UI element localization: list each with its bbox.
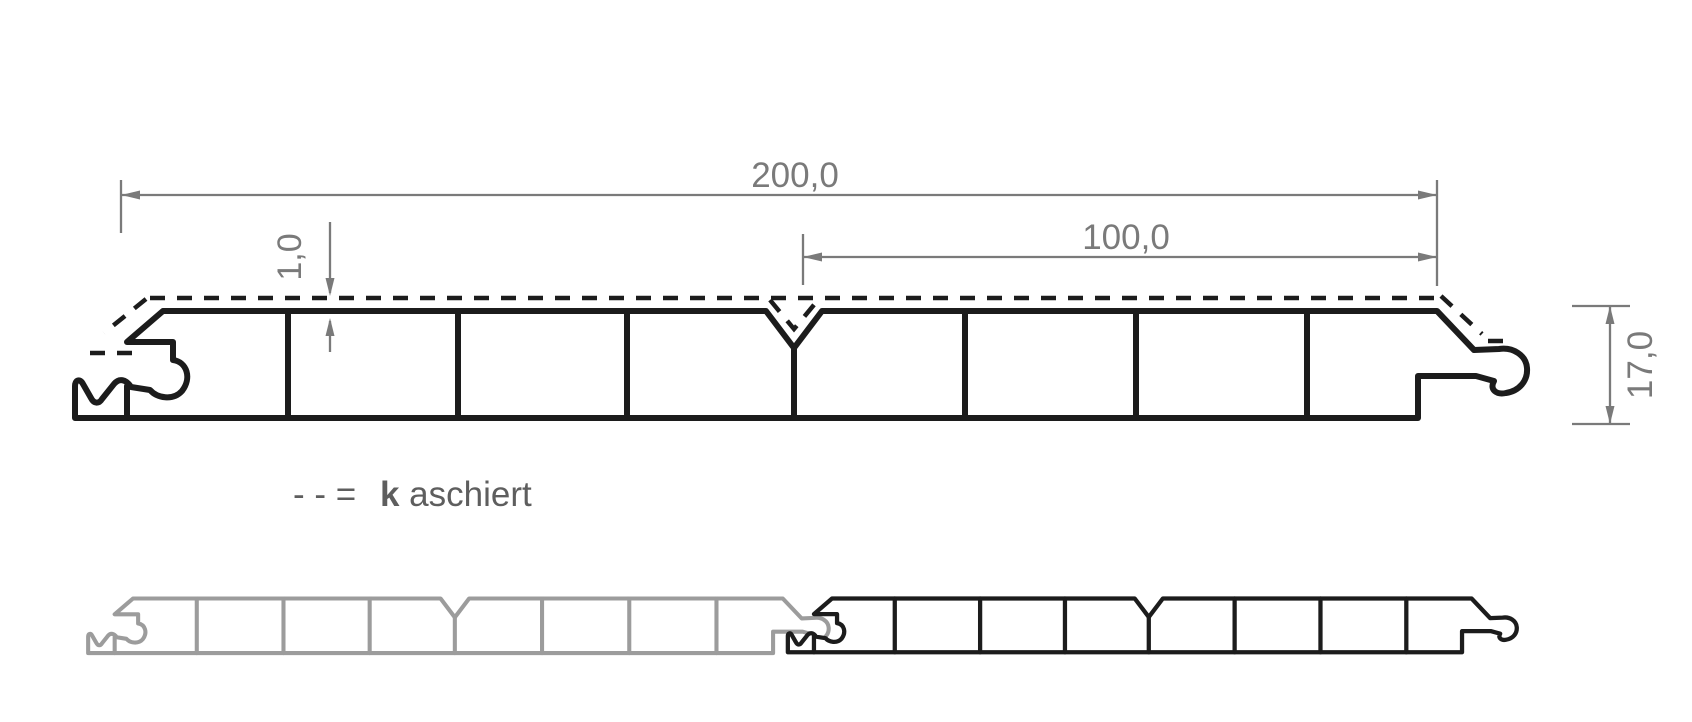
- arrow-200-left: [121, 191, 140, 200]
- legend-kaschiert: - - = k aschiert: [293, 475, 532, 514]
- legend-dash-symbol: - - =: [293, 475, 356, 514]
- dimension-label-profile-height: 17,0: [1621, 331, 1660, 399]
- main-profile-cross-section: [75, 311, 1527, 418]
- panel-gray-profile: [88, 599, 829, 654]
- interlocked-panels-assembly: [88, 599, 1517, 654]
- dimension-label-total-width: 200,0: [751, 156, 839, 195]
- technical-drawing-page: 200,0 100,0 1,0 17,0 - - = k aschiert: [0, 0, 1692, 722]
- legend-term-rest: aschiert: [409, 475, 532, 514]
- arrow-200-right: [1418, 191, 1437, 200]
- panel-profile-drawing: 200,0 100,0 1,0 17,0 - - = k aschiert: [0, 0, 1692, 722]
- arrow-100-right: [1418, 253, 1437, 262]
- arrow-17-down: [1606, 406, 1615, 424]
- dimension-label-half-width: 100,0: [1082, 218, 1170, 257]
- arrow-1-down: [326, 278, 335, 296]
- dimension-label-lamination-thickness: 1,0: [271, 233, 309, 280]
- arrow-17-up: [1606, 306, 1615, 324]
- legend-term-bold: k: [380, 475, 400, 514]
- arrow-100-left: [803, 253, 822, 262]
- panel-black-profile: [788, 599, 1517, 653]
